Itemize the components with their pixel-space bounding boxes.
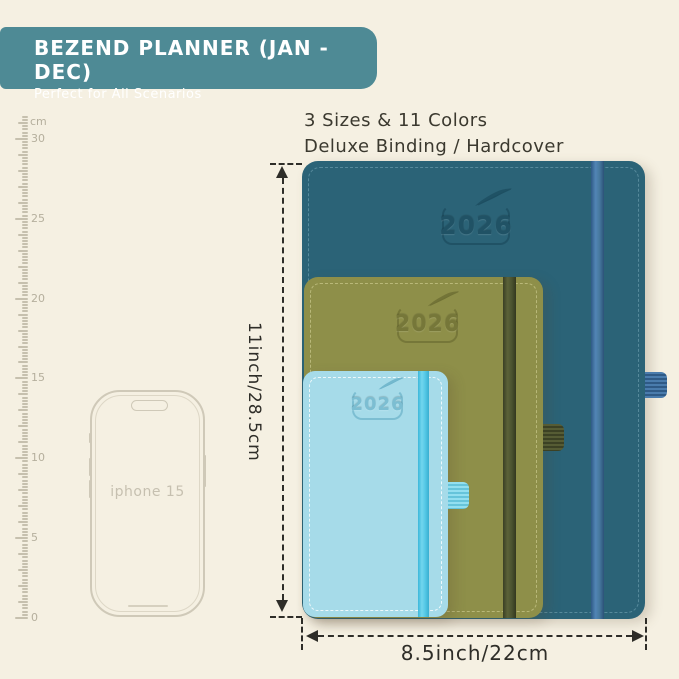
ruler-tick (18, 282, 28, 284)
ruler-tick (22, 224, 28, 226)
ruler-tick (18, 585, 28, 587)
ruler-tick (22, 246, 28, 248)
ruler-tick (22, 278, 28, 280)
ruler-tick (18, 473, 28, 475)
ruler-tick (22, 550, 28, 552)
ruler-tick (22, 368, 28, 370)
width-dimension-label: 8.5inch/22cm (330, 641, 620, 665)
product-title: BEZEND PLANNER (JAN - DEC) (34, 36, 377, 84)
feature-line-sizes: 3 Sizes & 11 Colors (304, 108, 564, 134)
ruler-tick (22, 470, 28, 472)
pen-loop (543, 424, 564, 451)
ruler-tick (22, 560, 28, 562)
ruler-tick (22, 141, 28, 143)
pen-loop (645, 372, 667, 398)
ruler-tick (18, 186, 28, 188)
ruler-tick (18, 425, 28, 427)
ruler-tick (22, 275, 28, 277)
ruler-tick (22, 499, 28, 501)
ruler-tick (22, 301, 28, 303)
year-logo-frame: 2026 (397, 306, 458, 343)
ruler-tick (22, 135, 28, 137)
ruler-tick (22, 384, 28, 386)
ruler-number: 20 (31, 292, 45, 305)
phone-dynamic-island (131, 400, 168, 411)
phone-volume-down-button (89, 480, 91, 498)
phone-mute-switch (89, 433, 91, 443)
iphone-outline: iphone 15 (90, 390, 205, 617)
year-logo: 2026 (442, 205, 510, 245)
ruler-number: 30 (31, 132, 45, 145)
ruler-tick (22, 231, 28, 233)
ruler-tick (22, 528, 28, 530)
ruler-tick (22, 147, 28, 149)
ruler-tick (22, 451, 28, 453)
ruler-tick (22, 400, 28, 402)
ruler-tick (22, 355, 28, 357)
ruler-tick (22, 253, 28, 255)
ruler-tick (22, 323, 28, 325)
product-infographic: BEZEND PLANNER (JAN - DEC) Perfect for A… (0, 0, 679, 679)
phone-home-bar (128, 605, 168, 607)
ruler-tick (22, 486, 28, 488)
ruler-tick (18, 569, 28, 571)
ruler-tick (22, 342, 28, 344)
height-extension-bottom (270, 616, 302, 618)
ruler-tick (22, 167, 28, 169)
elastic-band (591, 161, 604, 619)
ruler-tick (18, 553, 28, 555)
ruler-tick (22, 374, 28, 376)
ruler-tick (22, 572, 28, 574)
ruler-tick (22, 144, 28, 146)
ruler-tick (22, 575, 28, 577)
ruler-tick (22, 176, 28, 178)
ruler-tick (22, 317, 28, 319)
elastic-band (418, 371, 429, 617)
ruler-tick (22, 336, 28, 338)
ruler-tick (15, 138, 28, 140)
ruler-tick (22, 269, 28, 271)
ruler-tick (22, 448, 28, 450)
ruler-tick (22, 460, 28, 462)
ruler-tick (22, 508, 28, 510)
ruler-tick (22, 387, 28, 389)
ruler-tick (22, 595, 28, 597)
ruler-tick (22, 403, 28, 405)
ruler-tick (18, 505, 28, 507)
ruler-tick (22, 416, 28, 418)
ruler-tick (22, 598, 28, 600)
ruler-tick (22, 611, 28, 613)
ruler-tick (22, 518, 28, 520)
ruler-tick (22, 272, 28, 274)
ruler-tick (22, 288, 28, 290)
ruler-tick (22, 157, 28, 159)
phone-model-label: iphone 15 (92, 484, 203, 500)
ruler-tick (22, 256, 28, 258)
ruler-tick (22, 294, 28, 296)
year-text: 2026 (439, 211, 513, 240)
height-dimension-line (282, 178, 284, 600)
ruler-tick (22, 371, 28, 373)
ruler-tick (22, 179, 28, 181)
ruler-tick (22, 116, 28, 118)
ruler-tick (22, 390, 28, 392)
ruler-tick (22, 467, 28, 469)
ruler-tick (22, 211, 28, 213)
ruler-tick (22, 262, 28, 264)
phone-power-button (204, 455, 206, 487)
ruler-tick (22, 333, 28, 335)
ruler-tick (22, 125, 28, 127)
feature-line-binding: Deluxe Binding / Hardcover (304, 134, 564, 160)
ruler-tick (22, 579, 28, 581)
feature-headline: 3 Sizes & 11 Colors Deluxe Binding / Har… (304, 108, 564, 160)
ruler-tick (22, 128, 28, 130)
ruler-tick (22, 524, 28, 526)
width-extension-right (645, 618, 647, 650)
ruler-tick (22, 435, 28, 437)
year-logo-frame: 2026 (442, 205, 510, 245)
ruler-tick (22, 515, 28, 517)
ruler-tick (22, 307, 28, 309)
height-dimension-label: 11inch/28.5cm (244, 322, 264, 462)
ruler-tick (22, 540, 28, 542)
ruler-tick (22, 480, 28, 482)
ruler-tick (22, 422, 28, 424)
ruler-tick (22, 502, 28, 504)
ruler-tick (18, 122, 28, 124)
ruler-tick (22, 173, 28, 175)
width-arrow-left (306, 630, 318, 642)
ruler-tick (18, 154, 28, 156)
ruler-tick (22, 566, 28, 568)
ruler-tick (18, 346, 28, 348)
ruler-tick (22, 199, 28, 201)
ruler-tick (22, 547, 28, 549)
ruler-tick (22, 195, 28, 197)
ruler-tick (22, 221, 28, 223)
ruler-tick (22, 320, 28, 322)
ruler-tick (22, 591, 28, 593)
pen-loop (448, 482, 469, 509)
ruler-tick (18, 250, 28, 252)
ruler-tick (15, 218, 28, 220)
width-extension-left (301, 618, 303, 650)
ruler-tick (15, 377, 28, 379)
ruler-tick (22, 476, 28, 478)
ruler-tick (22, 483, 28, 485)
ruler-tick (22, 556, 28, 558)
ruler-tick (22, 381, 28, 383)
ruler-tick (15, 298, 28, 300)
ruler-tick (18, 361, 28, 363)
ruler-number: 25 (31, 212, 45, 225)
height-arrow-down (276, 600, 288, 612)
ruler-tick (22, 291, 28, 293)
ruler-tick (22, 512, 28, 514)
year-logo-frame: 2026 (352, 389, 403, 420)
ruler-tick (18, 409, 28, 411)
phone-volume-up-button (89, 458, 91, 476)
ruler-tick (22, 438, 28, 440)
ruler-tick (18, 170, 28, 172)
ruler-tick (22, 429, 28, 431)
ruler-tick (18, 266, 28, 268)
ruler-tick (15, 457, 28, 459)
ruler-tick (22, 406, 28, 408)
width-arrow-right (632, 630, 644, 642)
ruler-tick (22, 492, 28, 494)
ruler-tick (22, 397, 28, 399)
product-subtitle: Perfect for All Scenarios (34, 87, 377, 102)
planner-small: 2026 (303, 371, 448, 617)
ruler-tick (18, 314, 28, 316)
ruler-tick (22, 496, 28, 498)
ruler-tick (18, 601, 28, 603)
ruler-tick (22, 419, 28, 421)
year-text: 2026 (350, 394, 404, 415)
ruler-number: 15 (31, 371, 45, 384)
ruler-tick (22, 183, 28, 185)
ruler-tick (22, 588, 28, 590)
year-logo: 2026 (352, 389, 403, 420)
ruler-tick (22, 259, 28, 261)
ruler-tick (18, 441, 28, 443)
ruler-tick (22, 205, 28, 207)
ruler-tick (22, 208, 28, 210)
ruler-tick (22, 464, 28, 466)
ruler-tick (22, 604, 28, 606)
ruler-tick (18, 234, 28, 236)
ruler-tick (22, 365, 28, 367)
height-extension-top (270, 163, 302, 165)
ruler-tick (22, 544, 28, 546)
ruler-tick (22, 326, 28, 328)
height-arrow-up (276, 166, 288, 178)
ruler-number: 5 (31, 531, 38, 544)
ruler-tick (18, 330, 28, 332)
ruler-tick (22, 240, 28, 242)
ruler-tick (22, 413, 28, 415)
ruler-tick (22, 215, 28, 217)
ruler-tick (22, 119, 28, 121)
ruler-tick (22, 614, 28, 616)
ruler-number: 10 (31, 451, 45, 464)
ruler-tick (22, 339, 28, 341)
ruler-tick (22, 534, 28, 536)
ruler-tick (22, 349, 28, 351)
ruler-tick (22, 607, 28, 609)
ruler-tick (18, 489, 28, 491)
ruler-tick (22, 189, 28, 191)
elastic-band (503, 277, 516, 618)
ruler-tick (22, 227, 28, 229)
ruler-unit-label: cm (30, 115, 47, 128)
ruler-tick (22, 582, 28, 584)
ruler-tick (22, 237, 28, 239)
ruler-tick (22, 358, 28, 360)
ruler-tick (22, 192, 28, 194)
year-text: 2026 (395, 312, 460, 337)
ruler-tick (22, 445, 28, 447)
year-logo: 2026 (397, 306, 458, 343)
ruler-tick (18, 202, 28, 204)
ruler-tick (15, 537, 28, 539)
ruler-tick (22, 151, 28, 153)
ruler-tick (22, 304, 28, 306)
ruler-tick (22, 160, 28, 162)
ruler-tick (22, 310, 28, 312)
ruler-tick (22, 454, 28, 456)
cm-ruler: cm 302520151050 (0, 0, 60, 679)
ruler-tick (22, 531, 28, 533)
ruler-tick (18, 393, 28, 395)
ruler-tick (15, 617, 28, 619)
ruler-tick (22, 285, 28, 287)
ruler-tick (22, 432, 28, 434)
ruler-tick (22, 563, 28, 565)
ruler-tick (18, 521, 28, 523)
ruler-tick (22, 243, 28, 245)
ruler-tick (22, 352, 28, 354)
ruler-number: 0 (31, 611, 38, 624)
ruler-tick (22, 132, 28, 134)
ruler-tick (22, 163, 28, 165)
width-dimension-line (318, 635, 632, 637)
